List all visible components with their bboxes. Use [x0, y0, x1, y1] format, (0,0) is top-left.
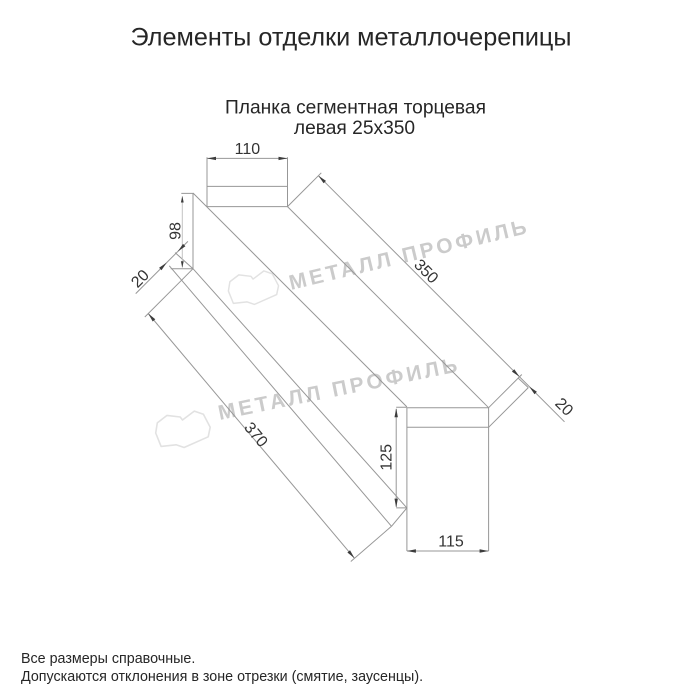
- svg-text:Все размеры справочные.: Все размеры справочные.: [21, 651, 195, 667]
- svg-text:Допускаются отклонения в зоне: Допускаются отклонения в зоне отрезки (с…: [21, 669, 423, 685]
- svg-text:110: 110: [235, 141, 261, 158]
- svg-text:125: 125: [378, 444, 395, 471]
- svg-text:115: 115: [438, 534, 464, 551]
- svg-text:левая 25х350: левая 25х350: [294, 118, 415, 139]
- svg-text:Планка сегментная торцевая: Планка сегментная торцевая: [225, 98, 486, 119]
- svg-text:Элементы отделки металлочерепи: Элементы отделки металлочерепицы: [131, 24, 572, 52]
- svg-text:98: 98: [167, 222, 184, 240]
